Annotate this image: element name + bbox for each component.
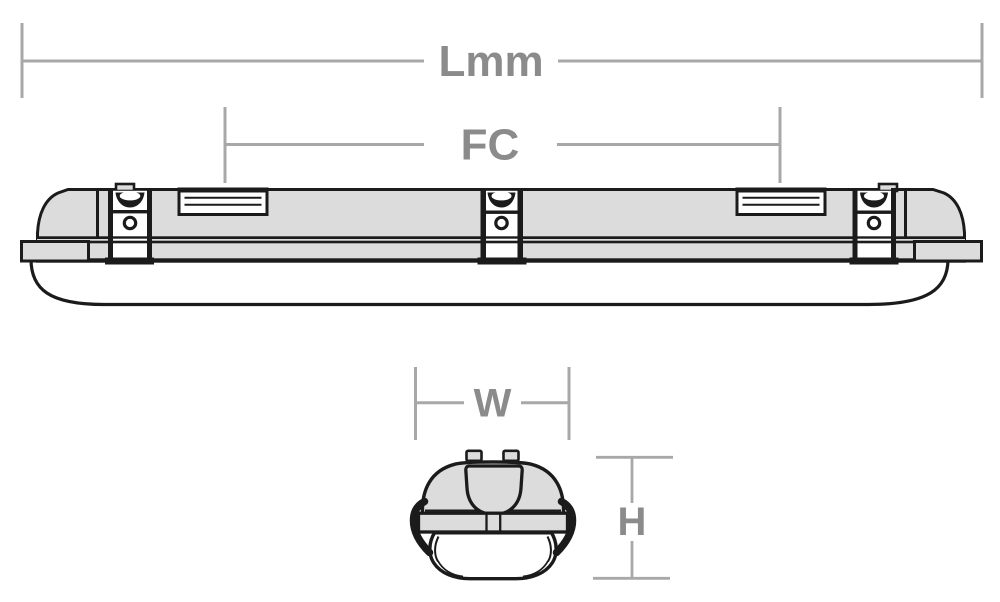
clip-side-bar (853, 188, 858, 263)
end-flange-right (915, 242, 982, 262)
end-flange-left (22, 242, 89, 262)
luminaire-dimension-diagram: Lmm FC (0, 0, 1000, 602)
mounting-clip-left (105, 184, 154, 265)
clip-screw-hole (124, 217, 135, 228)
clip-band-line (485, 241, 518, 244)
clip-band-line (112, 241, 148, 244)
diagram-canvas: Lmm FC (0, 0, 1000, 602)
clip-latch-highlight (492, 192, 512, 201)
vent-grille-left (178, 188, 269, 215)
width-label: W (474, 382, 512, 426)
clip-latch-highlight (864, 192, 884, 201)
grille-frame (737, 190, 825, 215)
vent-grille-right (736, 188, 827, 215)
clip-band-line (112, 236, 148, 238)
clip-side-bar (891, 188, 896, 263)
clip-foot (850, 258, 899, 265)
end-view (414, 451, 573, 579)
end-tab-right (504, 451, 519, 461)
end-reflector-shield (466, 466, 522, 515)
end-band (419, 513, 568, 532)
height-dimension: H (593, 457, 673, 578)
grille-frame (179, 190, 267, 215)
clip-side-bar (518, 188, 524, 263)
clip-band-line (857, 241, 891, 244)
clip-screw-hole (496, 217, 507, 228)
mounting-clip-right (850, 184, 899, 265)
clip-latch-highlight (120, 192, 141, 201)
width-dimension: W (416, 367, 570, 440)
clip-divider (112, 210, 148, 213)
fixing-centres-label: FC (461, 121, 520, 170)
mounting-clip-center (478, 188, 527, 265)
clip-foot (478, 258, 527, 265)
grille-top-bar (736, 188, 827, 193)
fixing-centres-dimension: FC (225, 107, 780, 183)
length-dimension: Lmm (22, 23, 982, 98)
clip-tab (116, 184, 134, 191)
clip-band-line (485, 236, 518, 238)
clip-side-bar (481, 188, 487, 263)
end-tab-left (467, 451, 482, 461)
clip-divider (485, 211, 518, 214)
clip-side-bar (108, 188, 113, 263)
clip-band-line (857, 236, 891, 238)
length-label: Lmm (438, 37, 543, 86)
side-view (22, 184, 982, 305)
clip-side-bar (147, 188, 152, 263)
height-label: H (618, 500, 647, 544)
grille-top-bar (178, 188, 269, 193)
clip-foot (105, 258, 154, 265)
clip-divider (857, 211, 891, 214)
clip-screw-hole (868, 217, 879, 228)
